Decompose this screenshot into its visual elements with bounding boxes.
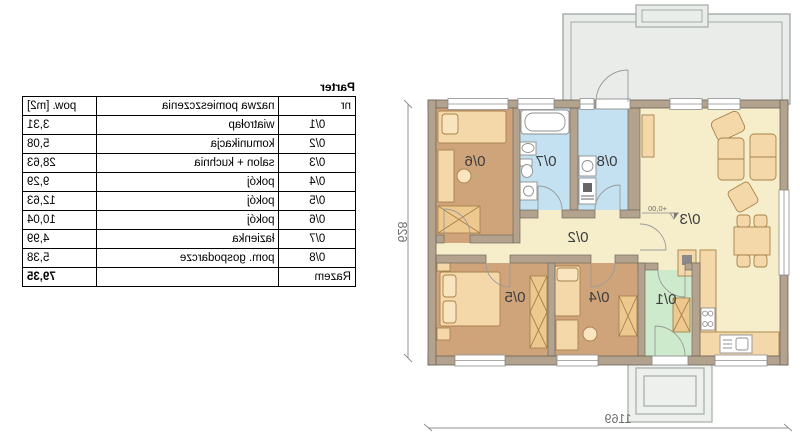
bed-single-r4 (555, 266, 580, 316)
window (715, 355, 767, 366)
cell-area: 28,63 (23, 154, 97, 173)
window (518, 99, 554, 110)
total-area: 79,35 (23, 268, 97, 287)
cell-name: pokój (97, 192, 279, 211)
dimension-height: 628 (395, 100, 412, 362)
table-header-row: nr nazwa pomieszczenia pow. [m2] (23, 97, 356, 116)
area-table-panel: Parter nr nazwa pomieszczenia pow. [m2] … (22, 80, 356, 287)
chair-r6 (457, 169, 471, 183)
bed-double-r5 (440, 272, 500, 326)
nightstand-1 (437, 263, 450, 271)
total-label: Razem (279, 268, 356, 287)
entry-porch (628, 360, 712, 422)
dimension-width: 1169 (424, 412, 792, 431)
room-label-0-6: 0/6 (465, 153, 486, 170)
table-row: 0/1 wiatrołap 3,31 (23, 116, 356, 135)
window (557, 355, 598, 366)
window (708, 99, 740, 110)
nightstand-2 (437, 328, 450, 340)
cell-name: komunikacja (97, 135, 279, 154)
table-row: 0/8 pom. gospodarcze 5,38 (23, 249, 356, 268)
cell-nr: 0/2 (279, 135, 356, 154)
window (779, 190, 789, 275)
cell-nr: 0/5 (279, 192, 356, 211)
cell-area: 12,63 (23, 192, 97, 211)
screenshot-root: 0/6 0/7 0/8 0/3 0/2 0/5 0/4 0/1 +0,00 11… (0, 0, 800, 438)
dimension-width-label: 1169 (605, 412, 632, 426)
table-row: 0/2 komunikacja 5,08 (23, 135, 356, 154)
hob (701, 308, 715, 330)
cell-name: pokój (97, 211, 279, 230)
room-label-0-8: 0/8 (597, 153, 618, 170)
kitchen-sink (720, 335, 752, 353)
room-label-0-2: 0/2 (568, 229, 589, 246)
terrace (563, 5, 790, 104)
bed-single-r6 (438, 111, 506, 143)
level-marker-label: +0,00 (648, 204, 667, 213)
cell-area: 10,04 (23, 211, 97, 230)
washbasin (520, 142, 536, 155)
terrace-steps (636, 5, 708, 27)
cell-area: 4,99 (23, 230, 97, 249)
total-empty (97, 268, 279, 287)
room-label-0-4: 0/4 (589, 289, 610, 306)
cell-name: wiatrołap (97, 116, 279, 135)
header-name: nazwa pomieszczenia (97, 97, 279, 116)
room-label-0-5: 0/5 (505, 289, 526, 306)
cell-area: 3,31 (23, 116, 97, 135)
desk-r4 (556, 320, 578, 350)
table-row: 0/6 pokój 10,04 (23, 211, 356, 230)
cell-nr: 0/6 (279, 211, 356, 230)
chair-r4 (583, 327, 597, 341)
wardrobe-r4 (619, 296, 637, 336)
cell-nr: 0/4 (279, 173, 356, 192)
wardrobe-r5 (530, 276, 547, 348)
bathtub (521, 110, 569, 134)
table-row: 0/5 pokój 12,63 (23, 192, 356, 211)
cell-nr: 0/3 (279, 154, 356, 173)
sofa-2 (750, 134, 776, 180)
window (670, 99, 702, 110)
mirrored-canvas: 0/6 0/7 0/8 0/3 0/2 0/5 0/4 0/1 +0,00 11… (0, 0, 800, 438)
table-total-row: Razem 79,35 (23, 268, 356, 287)
header-area: pow. [m2] (23, 97, 97, 116)
room-area-table: nr nazwa pomieszczenia pow. [m2] 0/1 wia… (22, 96, 356, 287)
cell-area: 5,08 (23, 135, 97, 154)
cell-name: łazienka (97, 230, 279, 249)
cell-nr: 0/7 (279, 230, 356, 249)
table-row: 0/4 pokój 9,29 (23, 173, 356, 192)
sofa-1 (718, 138, 744, 180)
cell-area: 5,38 (23, 249, 97, 268)
cell-name: salon + kuchnia (97, 154, 279, 173)
cell-name: pom. gospodarcze (97, 249, 279, 268)
window (455, 355, 505, 366)
cell-nr: 0/8 (279, 249, 356, 268)
dimension-height-label: 628 (395, 222, 409, 243)
floor-plan: 0/6 0/7 0/8 0/3 0/2 0/5 0/4 0/1 +0,00 11… (360, 0, 800, 438)
table-row: 0/3 salon + kuchnia 28,63 (23, 154, 356, 173)
desk-r6 (438, 150, 454, 202)
window (580, 99, 594, 110)
window (448, 99, 508, 110)
room-label-0-3: 0/3 (680, 211, 701, 228)
plan-title: Parter (22, 80, 355, 94)
cell-nr: 0/1 (279, 116, 356, 135)
boiler (579, 156, 596, 204)
cabinet-living (642, 115, 654, 157)
table-row: 0/7 łazienka 4,99 (23, 230, 356, 249)
room-label-0-7: 0/7 (536, 153, 557, 170)
room-label-0-1: 0/1 (656, 291, 677, 308)
header-nr: nr (279, 97, 356, 116)
cell-name: pokój (97, 173, 279, 192)
cell-area: 9,29 (23, 173, 97, 192)
washing-machine (520, 182, 537, 200)
